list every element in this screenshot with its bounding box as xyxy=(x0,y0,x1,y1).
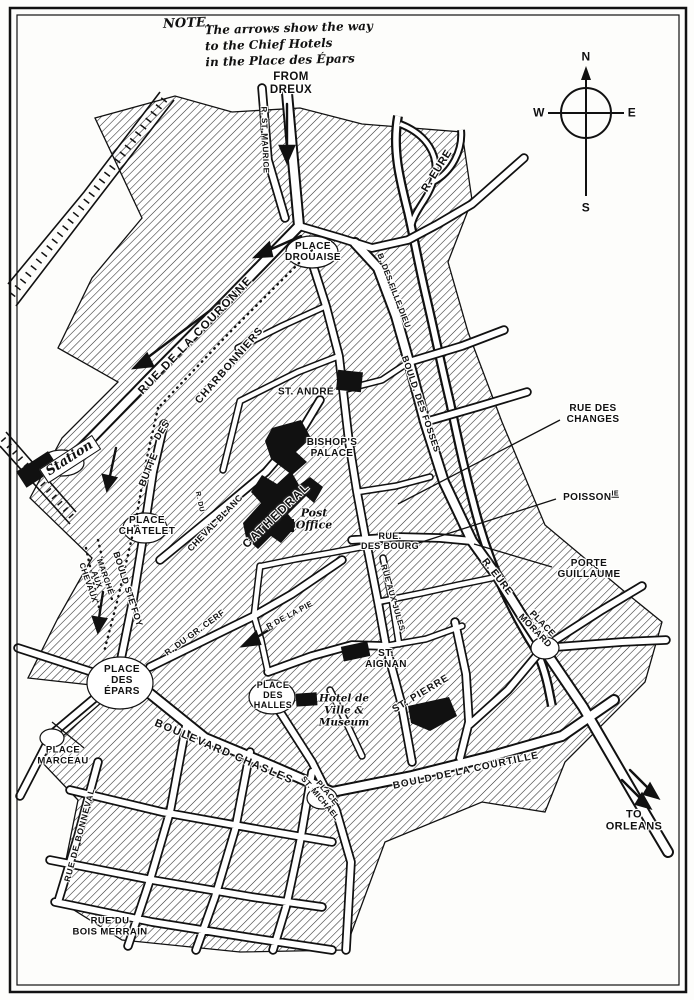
note-heading: NOTE. xyxy=(163,15,211,32)
hotel-de-ville-building xyxy=(296,692,318,706)
note-body: The arrows show the way to the Chief Hot… xyxy=(204,19,373,71)
label-place-marceau: PLACE MARCEAU xyxy=(37,745,88,766)
post-office-building xyxy=(281,519,294,532)
label-rue-des-changes: RUE DES CHANGES xyxy=(567,403,620,425)
label-place-des-epars: PLACE DES ÉPARS xyxy=(104,664,140,698)
compass-south-label: S xyxy=(582,201,590,214)
label-st-aignan: ST. AIGNAN xyxy=(365,648,407,670)
label-rue-st-maurice: R. ST. MAURICE xyxy=(258,106,269,173)
compass-west-label: W xyxy=(533,106,545,119)
label-st-andre: ST. ANDRÉ xyxy=(278,386,334,397)
label-rue-du-bois-merrain: RUE DU BOIS MERRAIN xyxy=(73,916,148,937)
label-poissonnerie: POISSONIE xyxy=(563,491,619,504)
compass-rose xyxy=(548,66,624,196)
label-hotel-de-ville: Hotel de Ville & Museum xyxy=(319,693,370,728)
label-post-office: Post Office xyxy=(296,508,333,533)
label-place-drouaise: PLACE DROUAISE xyxy=(285,241,341,263)
map-page: NOTE. The arrows show the way to the Chi… xyxy=(0,0,694,1000)
label-from-dreux: FROM DREUX xyxy=(270,71,312,97)
compass-north-label: N xyxy=(581,50,590,63)
label-rue-des-bourg: RUE. DES BOURG xyxy=(361,531,419,551)
label-place-des-halles: PLACE DES HALLES xyxy=(254,680,292,710)
st-andre-building xyxy=(336,370,363,393)
compass-east-label: E xyxy=(628,106,636,119)
label-place-chatelet: PLACE CHÂTELET xyxy=(119,515,176,537)
poissonnerie-superscript: IE xyxy=(611,491,618,498)
label-porte-guillaume: PORTE GUILLAUME xyxy=(557,558,620,580)
label-bishops-palace: BISHOP'S PALACE xyxy=(307,437,358,459)
label-to-orleans: TO ORLEANS xyxy=(606,809,663,834)
